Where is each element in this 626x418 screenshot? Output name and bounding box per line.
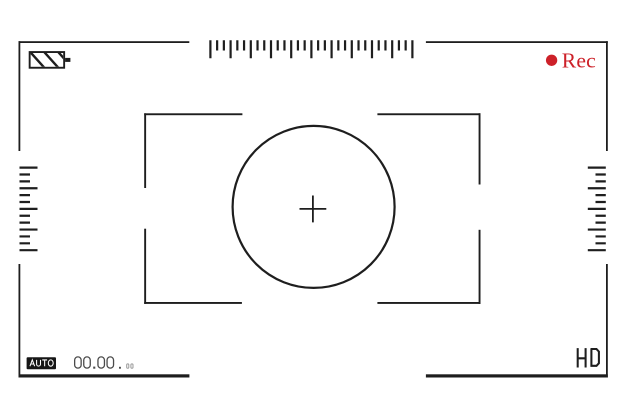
svg-text:Rec: Rec [562,48,596,72]
